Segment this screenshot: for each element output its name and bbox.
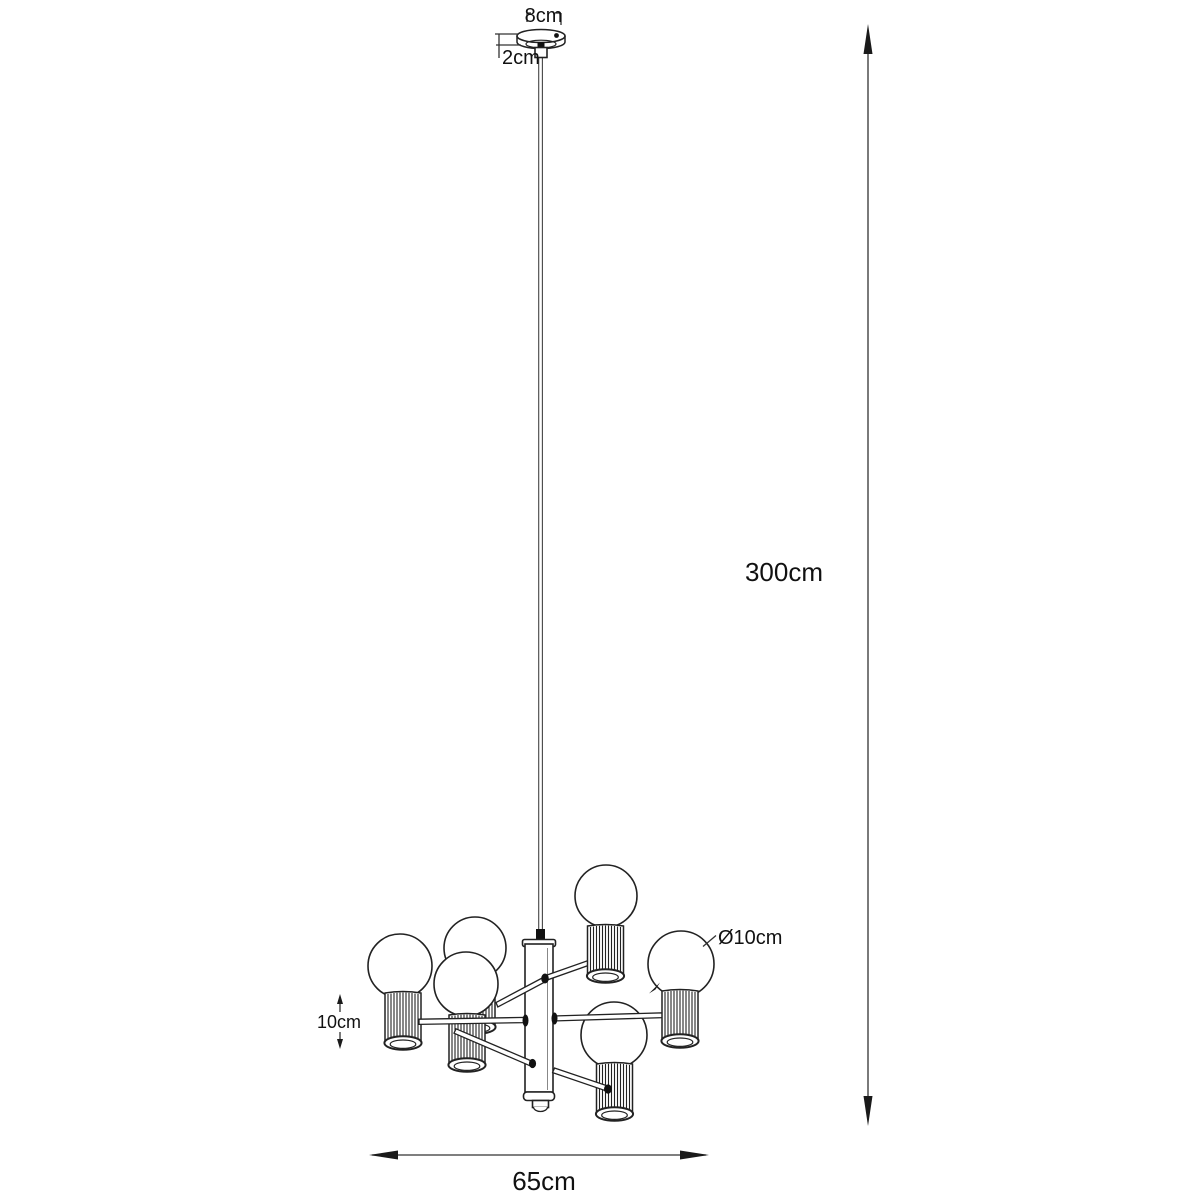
arrow-left	[369, 1151, 398, 1160]
dim-shade-height: 10cm	[317, 994, 361, 1049]
body-finial	[533, 1101, 549, 1108]
rod-joint-left	[523, 1015, 529, 1027]
lamp-unit-left	[368, 934, 432, 1050]
shade-right	[661, 990, 698, 1048]
rod-joint-right	[552, 1013, 558, 1025]
arrow-down	[864, 1096, 873, 1126]
label-bulb-diameter: Ø10cm	[718, 927, 782, 949]
dim-suspension-height: 300cm	[745, 24, 873, 1126]
label-canopy-width: 8cm	[525, 5, 563, 27]
shade-top	[587, 925, 624, 983]
label-suspension-height: 300cm	[745, 557, 823, 587]
dimension-drawing: 8cm 2cm 300cm Ø10cm 10cm 65cm	[0, 0, 1200, 1200]
bulb-left	[368, 934, 432, 998]
bulb-right	[648, 931, 714, 997]
bulb-bottom	[581, 1002, 647, 1068]
shade-bottom	[596, 1063, 633, 1121]
arm-ball-joint-lower-left	[529, 1059, 536, 1068]
canopy-screw	[554, 33, 559, 38]
suspension-cable	[539, 57, 543, 938]
bulb-mid-front	[434, 952, 498, 1016]
dim-canopy-width: 8cm	[525, 5, 563, 27]
arm-ball-joint-upper	[541, 974, 549, 984]
shade-left	[384, 992, 421, 1050]
lamp-diagram-svg: 8cm 2cm 300cm Ø10cm 10cm 65cm	[0, 0, 1200, 1200]
small-arrow-down	[337, 1039, 343, 1049]
label-shade-height: 10cm	[317, 1012, 361, 1032]
bulb-top	[575, 865, 637, 927]
arrow-right	[680, 1151, 709, 1160]
arm-ball-joint-lower-right	[604, 1084, 612, 1093]
small-arrow-up	[337, 994, 343, 1004]
arrow-up	[864, 24, 873, 54]
label-canopy-height: 2cm	[502, 47, 540, 69]
label-fixture-width: 65cm	[512, 1166, 576, 1196]
lamp-unit-right	[648, 931, 714, 1048]
body-bottom-lip	[524, 1092, 555, 1101]
dim-fixture-width: 65cm	[369, 1151, 709, 1197]
